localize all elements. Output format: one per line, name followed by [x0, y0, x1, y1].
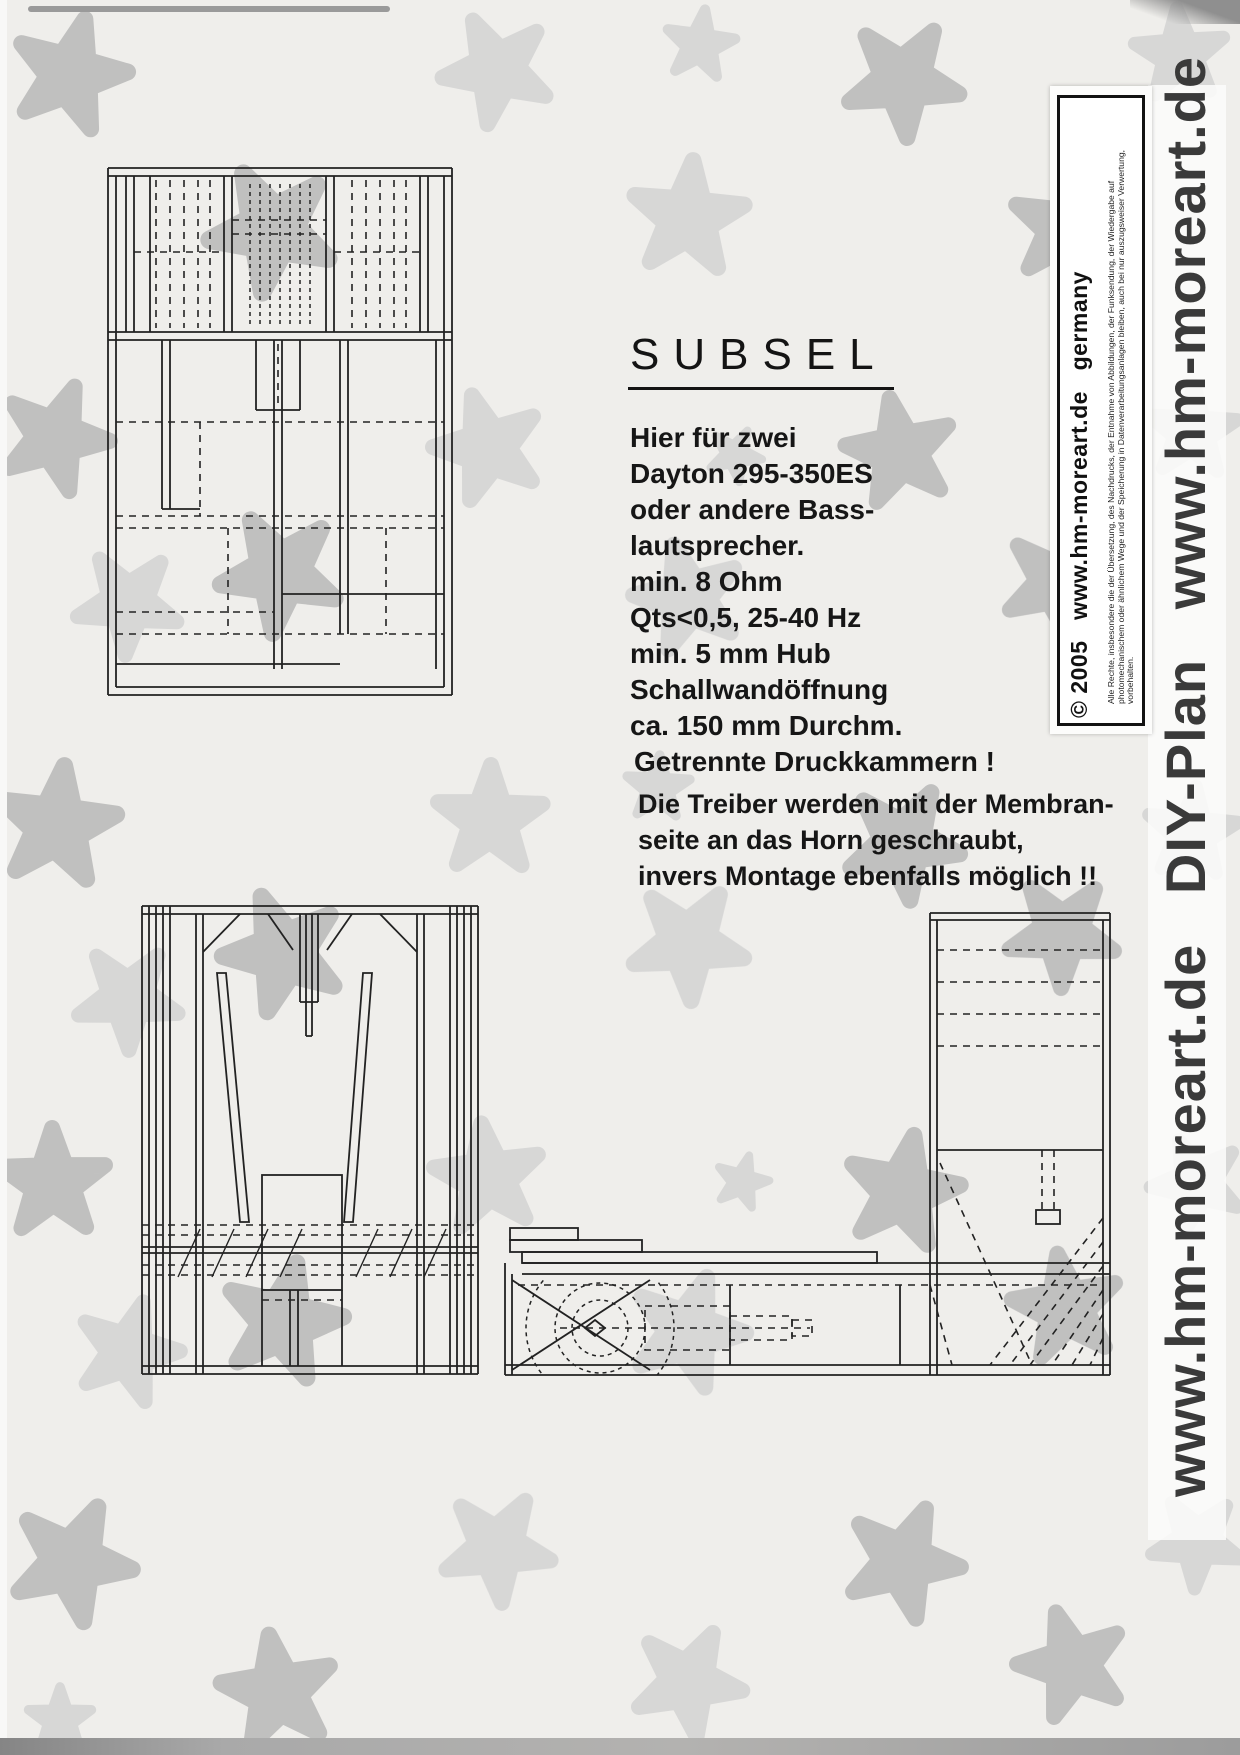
text-line: Dayton 295-350ES — [630, 456, 902, 492]
starfish-watermark — [629, 156, 748, 270]
starfish-watermark — [206, 1620, 358, 1755]
page-background: SUBSEL Hier für zweiDayton 295-350ESoder… — [0, 0, 1240, 1755]
starfish-watermark — [824, 0, 975, 151]
starfish-watermark — [5, 5, 138, 134]
starfish-watermark — [422, 754, 565, 896]
scan-bottom-edge — [0, 1738, 1240, 1755]
plan-view-drawing — [104, 164, 456, 699]
starfish-watermark — [666, 5, 741, 83]
text-line: ca. 150 mm Durchm. — [630, 708, 902, 744]
vertical-site-banner: www.hm-moreart.de DIY-Plan www.hm-morear… — [1152, 137, 1218, 1497]
front-view-drawing — [140, 900, 480, 1380]
callout-text: Getrennte Druckkammern ! — [634, 746, 995, 778]
copyright-fine-print: Alle Rechte, insbesondere die der Überse… — [1107, 119, 1136, 704]
page-title: SUBSEL — [628, 330, 894, 390]
text-line: Die Treiber werden mit der Membran- — [638, 786, 1114, 822]
scan-top-edge-artifact — [28, 6, 390, 12]
starfish-watermark — [1006, 1591, 1148, 1734]
text-line: Schallwandöffnung — [630, 672, 902, 708]
text-line: Hier für zwei — [630, 420, 902, 456]
copyright-sticker-content: © 2005 www.hm-moreart.de germany Alle Re… — [1066, 114, 1136, 718]
starfish-watermark — [436, 17, 556, 133]
text-line: lautsprecher. — [630, 528, 902, 564]
note-paragraph: Die Treiber werden mit der Membran-seite… — [638, 786, 1114, 894]
scan-top-right-shadow — [1130, 0, 1240, 24]
copyright-main-text: © 2005 www.hm-moreart.de germany — [1066, 114, 1093, 718]
text-line: min. 5 mm Hub — [630, 636, 902, 672]
text-line: oder andere Bass- — [630, 492, 902, 528]
spec-list: Hier für zweiDayton 295-350ESoder andere… — [630, 420, 902, 744]
text-line: invers Montage ebenfalls möglich !! — [638, 858, 1114, 894]
scan-left-margin — [0, 0, 7, 1755]
starfish-watermark — [0, 748, 126, 899]
side-view-drawing — [500, 908, 1115, 1380]
text-line: seite an das Horn geschraubt, — [638, 822, 1114, 858]
starfish-watermark — [0, 1483, 150, 1631]
starfish-watermark — [612, 1606, 756, 1750]
starfish-watermark — [441, 1499, 554, 1607]
starfish-watermark — [0, 381, 120, 504]
starfish-watermark — [852, 1503, 966, 1622]
scanned-diy-plan-page: { "page": { "bg_color": "#efeeeb", "ink"… — [0, 0, 1240, 1755]
text-line: Qts<0,5, 25-40 Hz — [630, 600, 902, 636]
starfish-watermark — [0, 1117, 121, 1259]
text-line: min. 8 Ohm — [630, 564, 902, 600]
